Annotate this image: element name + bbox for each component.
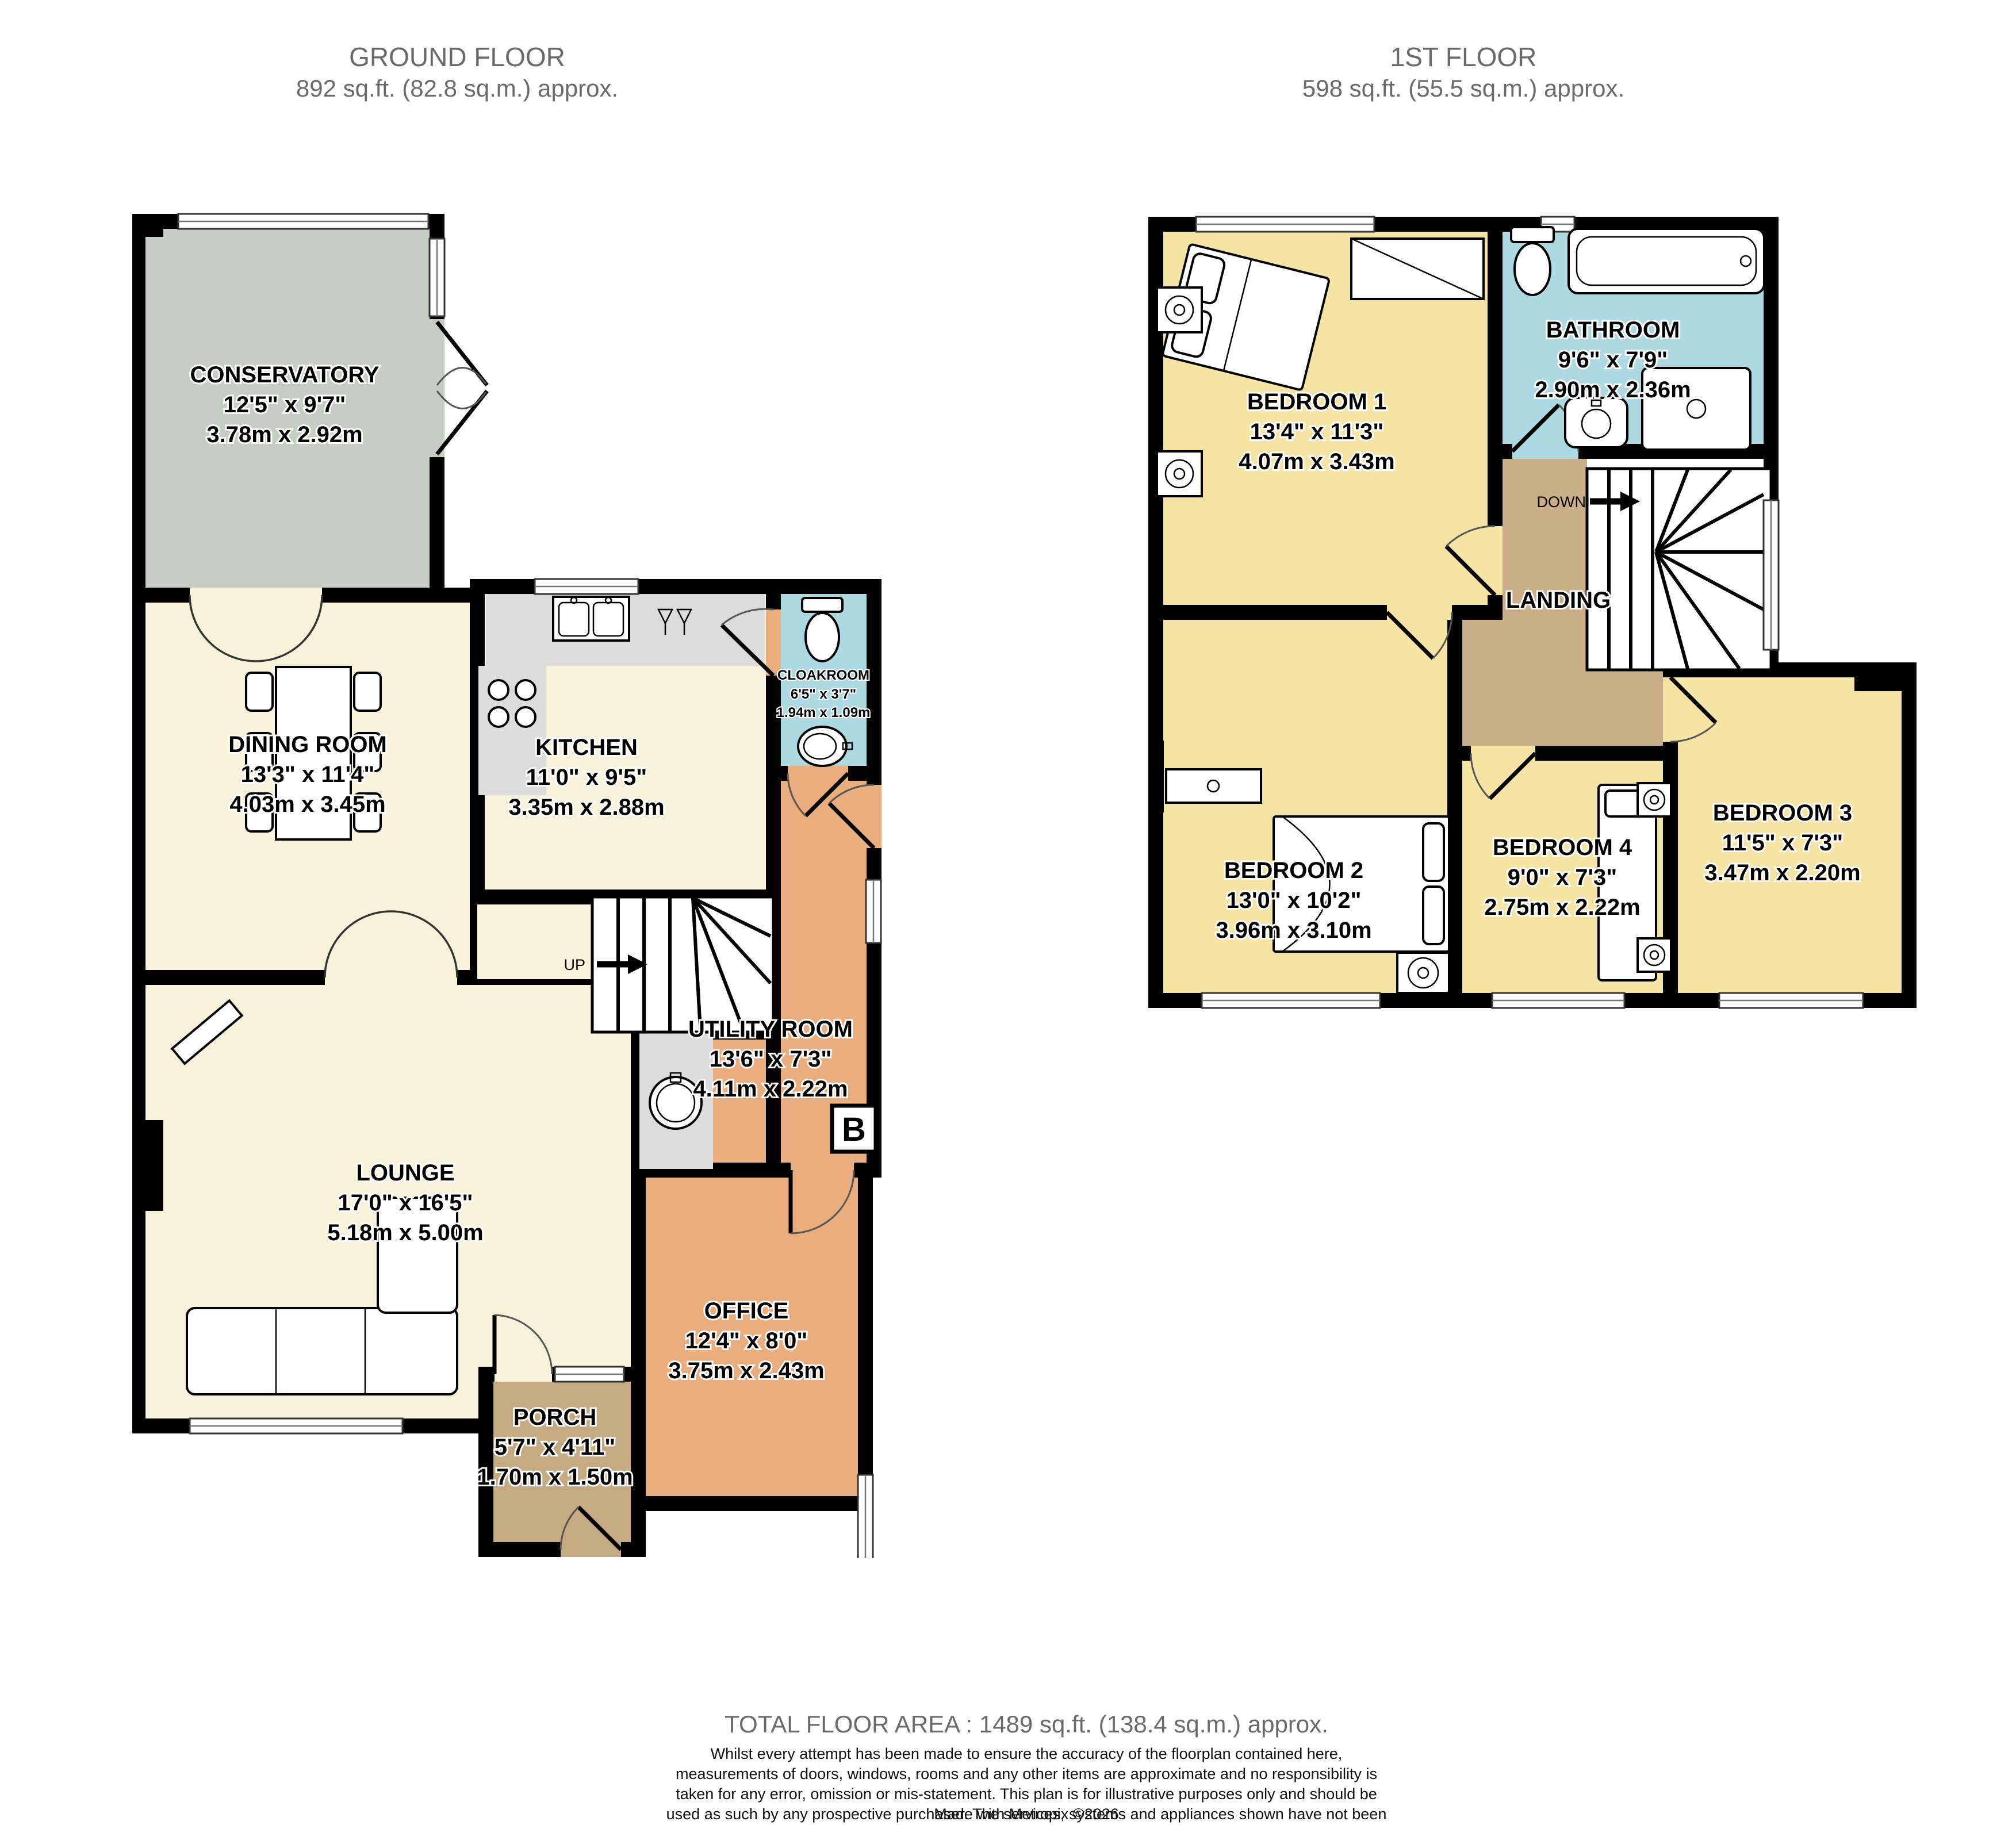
lounge-name: LOUNGE [356, 1160, 454, 1186]
first-floor-title: 1ST FLOOR [1147, 40, 1780, 74]
dining-imperial: 13'3" x 11'4" [241, 762, 375, 787]
window [555, 1367, 624, 1382]
bedroom4-metric: 2.75m x 2.22m [1484, 895, 1640, 920]
boiler-badge: B [832, 1106, 876, 1152]
opening [867, 785, 881, 848]
wardrobe-icon-bedroom1 [1351, 239, 1484, 299]
opening [1512, 444, 1578, 459]
window [430, 239, 444, 316]
window [190, 1418, 403, 1433]
bedroom2-metric: 3.96m x 3.10m [1216, 918, 1371, 943]
first-floor-area: 598 sq.ft. (55.5 sq.m.) approx. [1147, 74, 1780, 103]
toilet-icon-bathroom [1511, 227, 1554, 295]
bedroom2-imperial: 13'0" x 10'2" [1227, 888, 1362, 913]
up-label: UP [564, 956, 585, 973]
opening [190, 588, 322, 603]
cloakroom-metric: 1.94m x 1.09m [777, 705, 871, 720]
cloakroom-toilet-icon [802, 598, 842, 661]
bathroom-sink-icon [1565, 398, 1627, 447]
office-name: OFFICE [704, 1298, 789, 1324]
ground-floor-plan: UP [132, 213, 891, 1558]
boiler-label: B [842, 1111, 866, 1148]
chimney-breast [139, 1120, 163, 1211]
kitchen-imperial: 11'0" x 9'5" [526, 765, 647, 790]
opening [791, 1163, 854, 1178]
dining-metric: 4.03m x 3.45m [229, 792, 385, 817]
opening [495, 1367, 552, 1382]
bedroom3-imperial: 11'5" x 7'3" [1722, 830, 1843, 856]
cloakroom-imperial: 6'5" x 3'7" [791, 687, 856, 702]
speaker-icon [1638, 783, 1671, 816]
cloakroom-name: CLOAKROOM [777, 668, 869, 683]
landing-fill [1495, 667, 1676, 756]
office-imperial: 12'4" x 8'0" [685, 1328, 808, 1354]
speaker-icon [1638, 938, 1671, 972]
window [858, 1475, 873, 1558]
opening [1471, 746, 1535, 761]
bedroom3-name: BEDROOM 3 [1713, 800, 1852, 826]
bedroom4-imperial: 9'0" x 7'3" [1508, 865, 1617, 890]
floorplan-page: GROUND FLOOR 892 sq.ft. (82.8 sq.m.) app… [0, 0, 2016, 1825]
bedroom1-imperial: 13'4" x 11'3" [1250, 419, 1384, 444]
opening [561, 1542, 621, 1557]
bathroom-metric: 2.90m x 2.36m [1535, 377, 1691, 402]
bathroom-imperial: 9'6" x 7'9" [1558, 347, 1668, 373]
corner-block [133, 214, 163, 237]
bedroom1-name: BEDROOM 1 [1247, 389, 1386, 415]
kitchen-sink-icon [553, 597, 629, 641]
bathtub-icon [1569, 229, 1764, 293]
window [1196, 217, 1374, 232]
credit-text: Made with Metropix ©2026 [661, 1805, 1392, 1823]
landing-name: LANDING [1506, 588, 1611, 613]
window [1492, 993, 1624, 1008]
window [535, 579, 638, 594]
window [178, 214, 428, 229]
bathroom-name: BATHROOM [1546, 317, 1680, 343]
stairs-up-icon: UP [564, 897, 773, 1032]
lounge-imperial: 17'0" x 16'5" [338, 1190, 473, 1216]
speaker-icon [1157, 451, 1202, 496]
opening [766, 609, 781, 676]
bedroom4-name: BEDROOM 4 [1493, 835, 1632, 860]
utility-imperial: 13'6" x 7'3" [710, 1046, 832, 1072]
opening [325, 970, 457, 985]
ground-floor-area: 892 sq.ft. (82.8 sq.m.) approx. [141, 74, 773, 103]
dining-name: DINING ROOM [228, 732, 387, 757]
kitchen-metric: 3.35m x 2.88m [508, 795, 664, 820]
opening [788, 766, 848, 781]
speaker-icon [1397, 953, 1449, 993]
window [1764, 500, 1779, 650]
kitchen-name: KITCHEN [535, 735, 638, 760]
ground-floor-title: GROUND FLOOR [141, 40, 773, 74]
conservatory-metric: 3.78m x 2.92m [206, 422, 362, 447]
first-floor-header: 1ST FLOOR 598 sq.ft. (55.5 sq.m.) approx… [1147, 40, 1780, 103]
corner-block [1854, 662, 1909, 691]
speaker-icon [1157, 287, 1202, 332]
window [1202, 993, 1380, 1008]
opening [1387, 605, 1452, 620]
window [1719, 993, 1863, 1008]
opening [430, 319, 444, 457]
opening [1488, 526, 1503, 595]
window [866, 880, 881, 943]
bedroom1-metric: 4.07m x 3.43m [1239, 449, 1394, 474]
utility-name: UTILITY ROOM [688, 1017, 853, 1042]
bedroom3-metric: 3.47m x 2.20m [1704, 860, 1860, 885]
lounge-metric: 5.18m x 5.00m [327, 1220, 483, 1245]
conservatory-name: CONSERVATORY [190, 362, 380, 388]
wardrobe-icon-bedroom2 [1166, 769, 1261, 803]
room-porch [486, 1374, 638, 1550]
ground-floor-header: GROUND FLOOR 892 sq.ft. (82.8 sq.m.) app… [141, 40, 773, 103]
opening [1663, 677, 1678, 742]
bedroom2-name: BEDROOM 2 [1224, 858, 1363, 883]
first-floor-plan: DOWN [1139, 207, 1921, 1012]
down-label: DOWN [1537, 493, 1586, 511]
chimney-breast [1148, 741, 1164, 812]
porch-imperial: 5'7" x 4'11" [495, 1435, 615, 1460]
office-metric: 3.75m x 2.43m [668, 1358, 824, 1383]
total-floor-area: TOTAL FLOOR AREA : 1489 sq.ft. (138.4 sq… [653, 1711, 1400, 1738]
conservatory-imperial: 12'5" x 9'7" [224, 392, 346, 417]
porch-name: PORCH [513, 1405, 596, 1430]
porch-metric: 1.70m x 1.50m [477, 1464, 633, 1490]
utility-metric: 4.11m x 2.22m [693, 1076, 848, 1102]
